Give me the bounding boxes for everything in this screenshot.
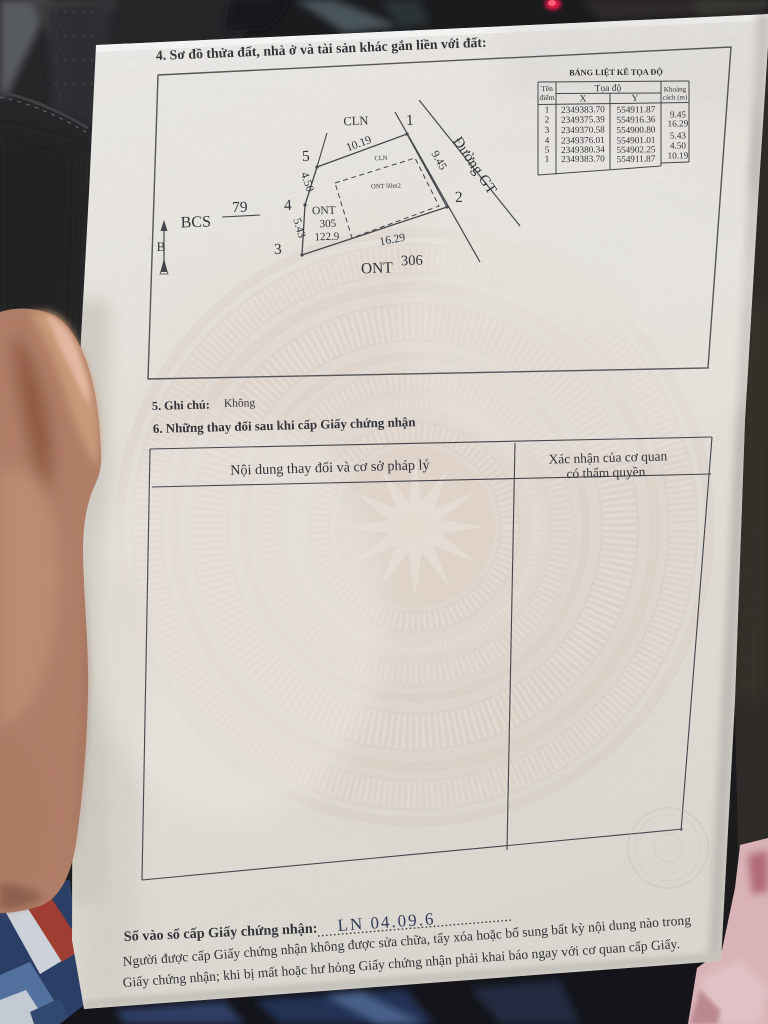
svg-text:3: 3 — [274, 241, 283, 258]
svg-text:3: 3 — [545, 125, 550, 135]
svg-text:1: 1 — [545, 154, 550, 164]
svg-text:Không: Không — [224, 397, 256, 410]
svg-text:X: X — [579, 94, 586, 104]
svg-text:CLN: CLN — [343, 114, 368, 129]
svg-text:305: 305 — [319, 218, 336, 231]
svg-text:1: 1 — [406, 112, 414, 129]
svg-text:5: 5 — [302, 148, 311, 165]
svg-text:B: B — [157, 239, 166, 254]
svg-text:5.43: 5.43 — [670, 130, 687, 140]
svg-text:điểm: điểm — [539, 93, 554, 102]
svg-text:1: 1 — [545, 104, 550, 114]
svg-text:554911.87: 554911.87 — [617, 104, 656, 115]
svg-text:79: 79 — [232, 199, 248, 217]
svg-text:2349375.39: 2349375.39 — [561, 114, 605, 125]
svg-text:CLN: CLN — [374, 155, 388, 162]
svg-text:cách (m): cách (m) — [663, 93, 688, 101]
svg-text:ONT 50m2: ONT 50m2 — [371, 182, 401, 190]
svg-text:2349383.70: 2349383.70 — [561, 153, 605, 164]
svg-text:ONT: ONT — [361, 259, 394, 277]
svg-text:16.29: 16.29 — [668, 118, 689, 128]
svg-text:BCS: BCS — [180, 213, 211, 231]
svg-text:4.50: 4.50 — [670, 140, 687, 150]
svg-text:5. Ghi chú:: 5. Ghi chú: — [152, 397, 210, 413]
svg-text:2: 2 — [545, 114, 550, 124]
svg-text:306: 306 — [401, 253, 423, 270]
svg-text:BẢNG LIỆT KÊ TỌA ĐỘ: BẢNG LIỆT KÊ TỌA ĐỘ — [569, 67, 663, 78]
svg-text:Y: Y — [631, 94, 638, 104]
svg-text:10.19: 10.19 — [668, 150, 689, 160]
svg-text:554911.87: 554911.87 — [617, 153, 656, 164]
svg-text:Tọa độ: Tọa độ — [595, 84, 622, 94]
svg-text:2349370.58: 2349370.58 — [561, 124, 605, 135]
svg-text:có thẩm quyền: có thẩm quyền — [566, 464, 646, 481]
svg-text:554916.36: 554916.36 — [616, 114, 656, 125]
svg-text:2: 2 — [455, 189, 463, 206]
svg-text:ONT: ONT — [312, 205, 336, 218]
svg-text:554900.80: 554900.80 — [616, 124, 656, 135]
svg-text:Tên: Tên — [541, 84, 553, 93]
svg-text:122.9: 122.9 — [314, 231, 340, 244]
svg-text:4: 4 — [284, 197, 293, 214]
